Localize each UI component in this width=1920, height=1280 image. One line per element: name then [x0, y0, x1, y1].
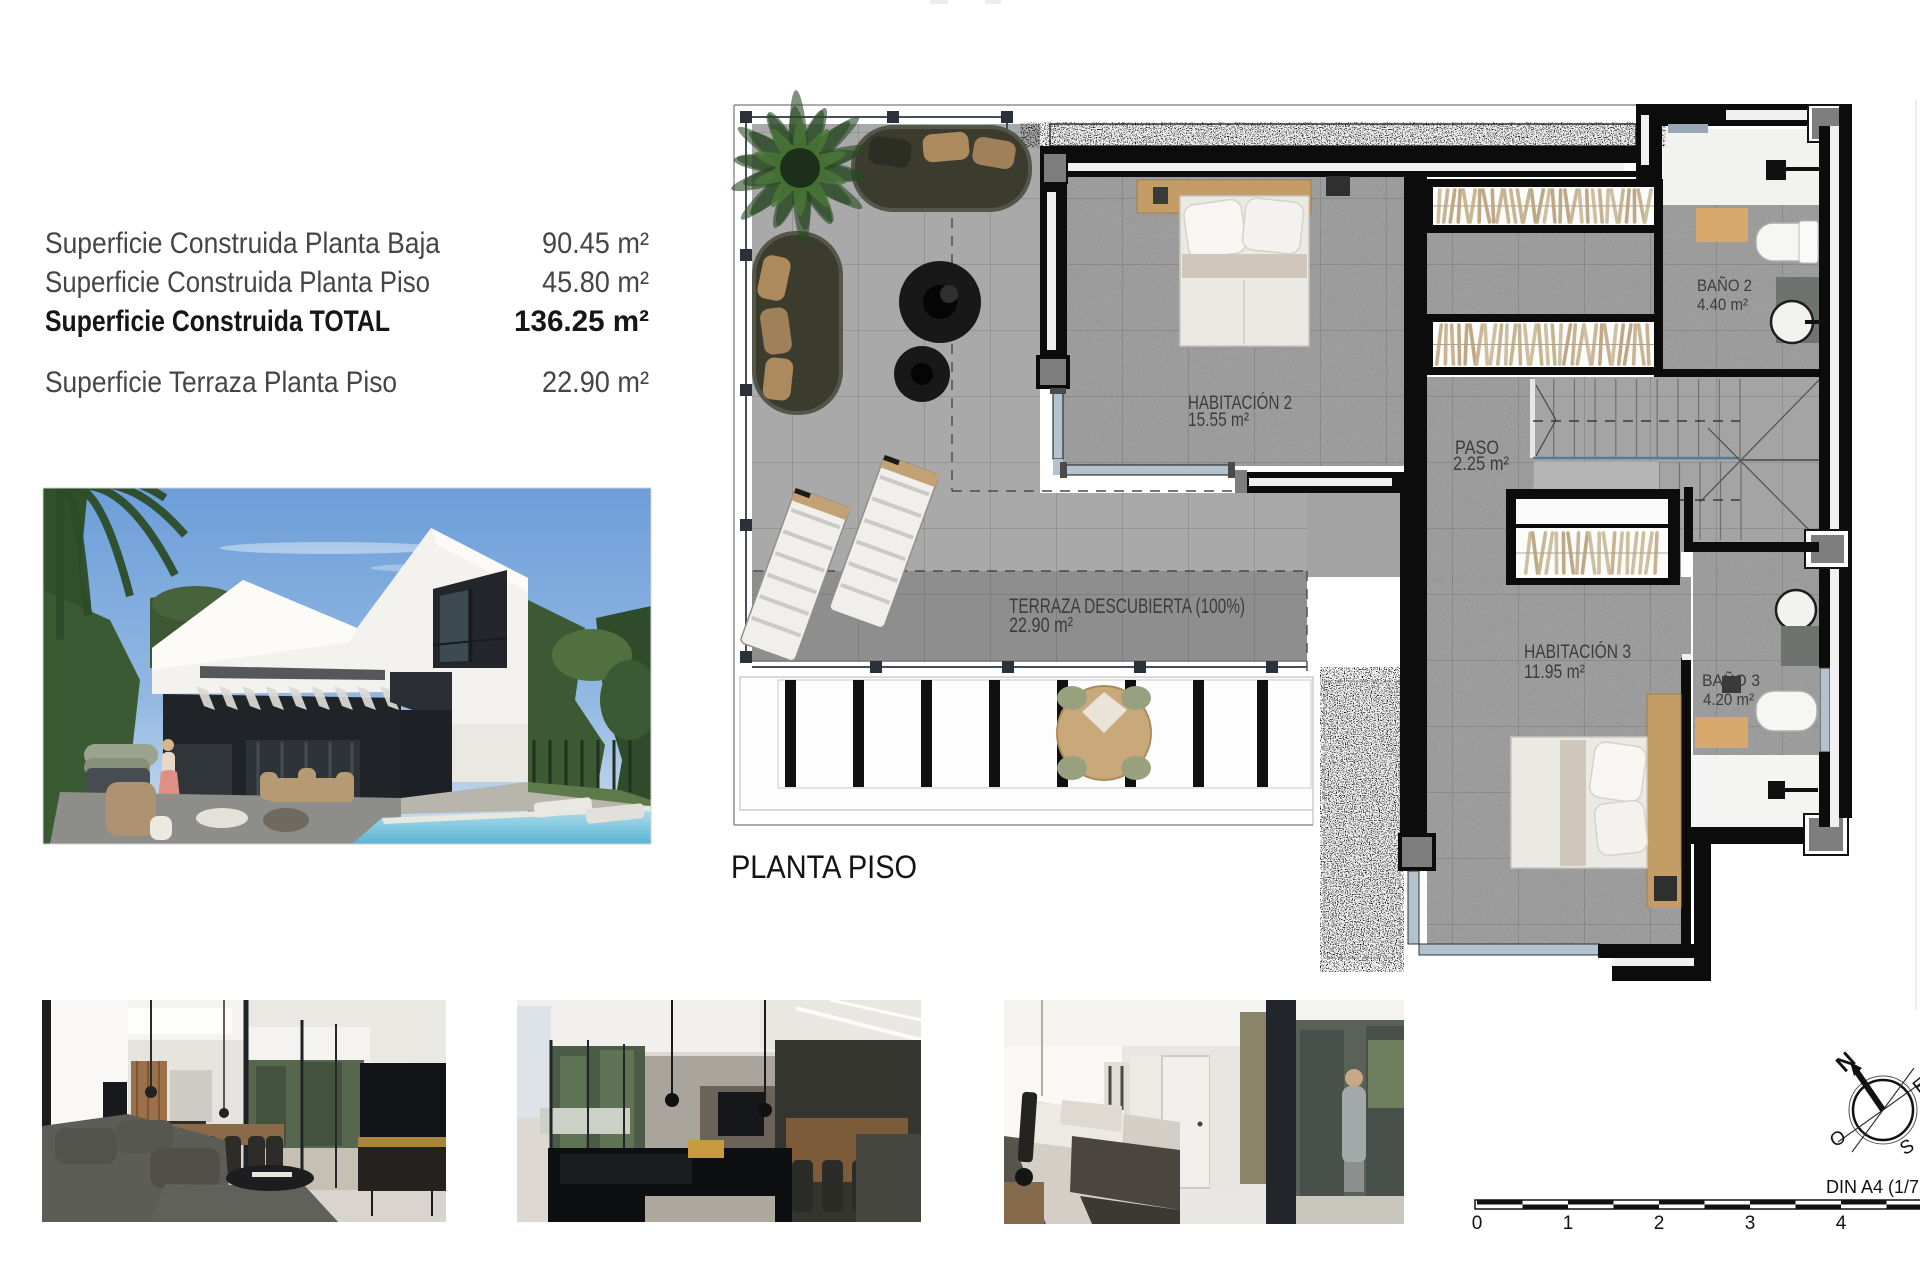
svg-text:Superficie Terraza Planta Piso: Superficie Terraza Planta Piso: [45, 366, 397, 399]
svg-text:Superficie Construida Planta P: Superficie Construida Planta Piso: [45, 266, 430, 299]
svg-text:2.25 m²: 2.25 m²: [1453, 454, 1509, 475]
svg-text:Superficie Construida TOTAL: Superficie Construida TOTAL: [45, 305, 390, 338]
svg-text:22.90 m²: 22.90 m²: [1009, 614, 1073, 637]
svg-text:2: 2: [1654, 1213, 1665, 1234]
svg-text:3: 3: [1745, 1213, 1756, 1234]
svg-text:O: O: [1827, 1126, 1850, 1152]
svg-text:DIN A4 (1/75): DIN A4 (1/75): [1826, 1177, 1920, 1197]
svg-text:4.20 m²: 4.20 m²: [1703, 690, 1754, 709]
svg-text:PLANTA PISO: PLANTA PISO: [731, 849, 917, 885]
svg-text:4: 4: [1836, 1213, 1847, 1234]
svg-text:0: 0: [1472, 1213, 1483, 1234]
svg-text:BAÑO 3: BAÑO 3: [1702, 671, 1760, 690]
svg-text:15.55 m²: 15.55 m²: [1188, 410, 1249, 431]
svg-text:S: S: [1897, 1135, 1918, 1160]
svg-text:HABITACIÓN 3: HABITACIÓN 3: [1524, 641, 1631, 663]
svg-text:4.40 m²: 4.40 m²: [1697, 295, 1748, 314]
svg-text:11.95 m²: 11.95 m²: [1524, 662, 1585, 683]
svg-text:E: E: [1909, 1074, 1920, 1098]
svg-text:90.45 m²: 90.45 m²: [542, 227, 649, 260]
svg-text:22.90 m²: 22.90 m²: [542, 366, 649, 399]
svg-text:45.80 m²: 45.80 m²: [542, 266, 649, 299]
svg-text:136.25 m²: 136.25 m²: [514, 305, 649, 338]
svg-text:BAÑO 2: BAÑO 2: [1697, 276, 1752, 295]
svg-text:Superficie Construida Planta B: Superficie Construida Planta Baja: [45, 227, 440, 260]
svg-text:1: 1: [1563, 1213, 1574, 1234]
